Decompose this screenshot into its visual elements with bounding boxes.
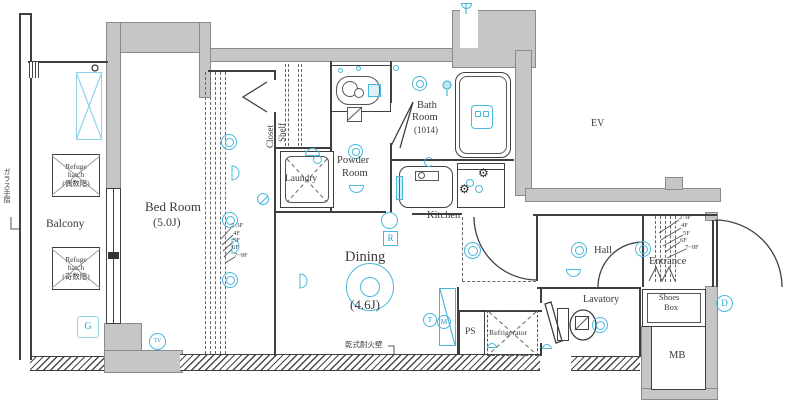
shower-icon bbox=[443, 81, 451, 89]
floor-note: 7~9F bbox=[234, 252, 248, 259]
room-label-lavatory: Lavatory bbox=[583, 294, 619, 305]
floor-note: 5F bbox=[233, 237, 240, 244]
room-label-shelf: Shelf bbox=[277, 123, 287, 142]
ceiling-light-icon bbox=[635, 241, 651, 257]
ac-unit-cross bbox=[76, 72, 102, 140]
entrance-door-arc bbox=[715, 220, 782, 287]
m-badge: M bbox=[437, 315, 451, 329]
room-label-balcony: Balcony bbox=[46, 218, 84, 230]
floor-note: 5F bbox=[683, 230, 690, 237]
balcony-hook bbox=[92, 65, 98, 71]
room-label-kitchen: Kitchen bbox=[427, 210, 460, 221]
d-badge: D bbox=[716, 295, 733, 312]
room-label-ps: PS bbox=[465, 327, 476, 337]
tv-badge: TV bbox=[149, 333, 166, 350]
r-badge: R bbox=[383, 231, 398, 246]
room-label-powder1: Powder bbox=[337, 155, 369, 166]
room-label-mb: MB bbox=[669, 350, 685, 361]
room-label-closet: Closet bbox=[265, 125, 275, 148]
room-size-bedroom: (5.0J) bbox=[153, 215, 181, 230]
mirror-diagonal bbox=[347, 107, 362, 121]
toilet-diagonal bbox=[575, 316, 589, 330]
room-label-refrigerator: Refrigerator bbox=[489, 328, 527, 337]
kitchen-door-arc bbox=[474, 217, 537, 280]
room-label-entrance: Entrance bbox=[649, 256, 686, 267]
ceiling-light-icon bbox=[221, 134, 237, 150]
room-label-shoes2: Box bbox=[664, 302, 678, 312]
ceiling-light-icon bbox=[222, 272, 238, 288]
floor-note: 7~9F bbox=[685, 244, 699, 251]
room-label-bedroom: Bed Room bbox=[145, 199, 201, 215]
room-label-hall: Hall bbox=[594, 245, 612, 256]
room-label-shoes1: Shoes bbox=[659, 292, 679, 302]
room-label-dining: Dining bbox=[345, 249, 385, 266]
floor-plan: ⚙ ⚙ Refuge hatch (偶数階) Refuge hatch (奇数階… bbox=[0, 0, 800, 417]
ceiling-light-icon bbox=[464, 242, 481, 259]
floor-note: 2·3F bbox=[679, 214, 691, 221]
r-meter-icon bbox=[381, 212, 398, 229]
room-label-laundry: Laundry bbox=[285, 174, 317, 184]
room-size-dining: (4.6J) bbox=[350, 297, 380, 313]
glass-rail-note: ガラス手摺 bbox=[2, 168, 12, 203]
room-label-bath2: Room bbox=[412, 112, 438, 123]
ceiling-light-icon bbox=[412, 76, 427, 91]
floor-note: 6F bbox=[680, 237, 687, 244]
bath-door-fold bbox=[391, 102, 413, 148]
floor-note: 4F bbox=[681, 222, 688, 229]
firewall-leader bbox=[388, 346, 394, 355]
outlet-icon bbox=[257, 193, 269, 205]
gas-badge: G bbox=[77, 316, 99, 338]
floor-note: 2·3F bbox=[231, 222, 243, 229]
t-badge: T bbox=[423, 313, 437, 327]
floor-note: 6F bbox=[232, 244, 239, 251]
room-label-bath1: Bath bbox=[417, 100, 437, 111]
entrance-step-marks bbox=[649, 267, 675, 281]
firewall-note: 乾式耐火壁 bbox=[345, 339, 383, 350]
glassrail-bracket bbox=[11, 217, 19, 229]
ceiling-light-icon bbox=[592, 317, 608, 333]
room-label-ev: EV bbox=[591, 118, 604, 129]
room-label-powder2: Room bbox=[342, 168, 368, 179]
floor-note: 4F bbox=[233, 230, 240, 237]
room-size-bath: (1014) bbox=[414, 125, 438, 135]
ceiling-light-icon bbox=[571, 242, 587, 258]
closet-door-fold bbox=[243, 82, 267, 112]
toilet-door-leaf bbox=[545, 302, 562, 343]
